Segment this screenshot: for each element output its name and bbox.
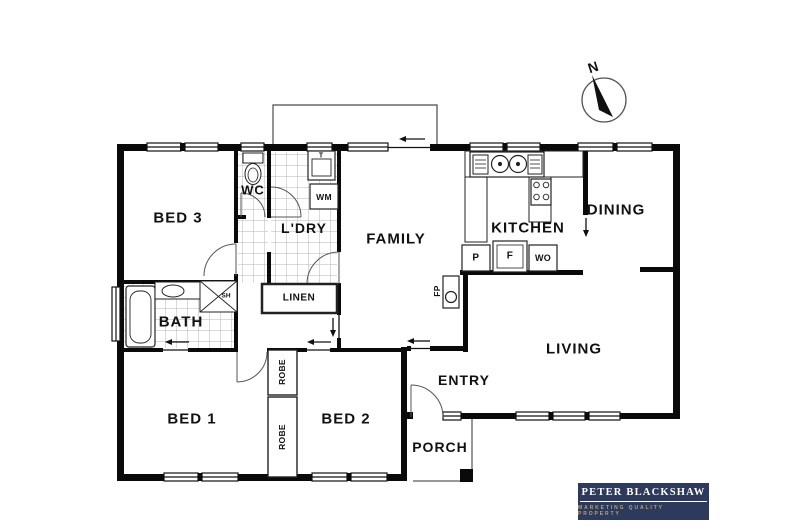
room-label-bed1: BED 1 <box>167 411 216 428</box>
agency-name: PETER BLACKSHAW <box>580 487 708 502</box>
room-label-wc: WC <box>241 183 265 198</box>
room-label-bed3: BED 3 <box>153 210 202 227</box>
fixture-label-tub: T <box>319 153 323 160</box>
fixture-label-robe-bottom: ROBE <box>277 424 287 450</box>
room-label-bed2: BED 2 <box>321 411 370 428</box>
fixture-label-wall-oven: WO <box>535 253 551 263</box>
floorplan-linework <box>0 0 790 527</box>
fixture-label-wm: WM <box>316 192 332 202</box>
room-label-bath: BATH <box>159 314 204 331</box>
room-label-porch: PORCH <box>412 439 468 455</box>
fixture-label-shower: SH <box>221 293 230 300</box>
pergola-outline <box>273 105 437 148</box>
agency-logo: PETER BLACKSHAW MARKETING QUALITY PROPER… <box>578 483 709 520</box>
room-label-living: LIVING <box>546 341 602 358</box>
fixture-label-fireplace: FP <box>432 285 442 296</box>
floorplan-page: BED 3 WC L'DRY FAMILY KITCHEN DINING LIV… <box>0 0 790 527</box>
fixture-label-fridge: F <box>507 251 514 262</box>
north-arrow-icon <box>582 75 626 122</box>
fixture-label-pantry: P <box>472 253 479 264</box>
room-label-entry: ENTRY <box>438 372 490 388</box>
room-label-dining: DINING <box>587 202 646 219</box>
room-label-kitchen: KITCHEN <box>491 220 565 237</box>
room-label-family: FAMILY <box>366 231 426 248</box>
fixture-label-robe-top: ROBE <box>277 359 287 385</box>
room-label-laundry: L'DRY <box>281 220 327 236</box>
fixture-label-linen: LINEN <box>283 293 316 304</box>
tiled-floors <box>124 152 337 348</box>
agency-tagline: MARKETING QUALITY PROPERTY <box>578 505 709 517</box>
